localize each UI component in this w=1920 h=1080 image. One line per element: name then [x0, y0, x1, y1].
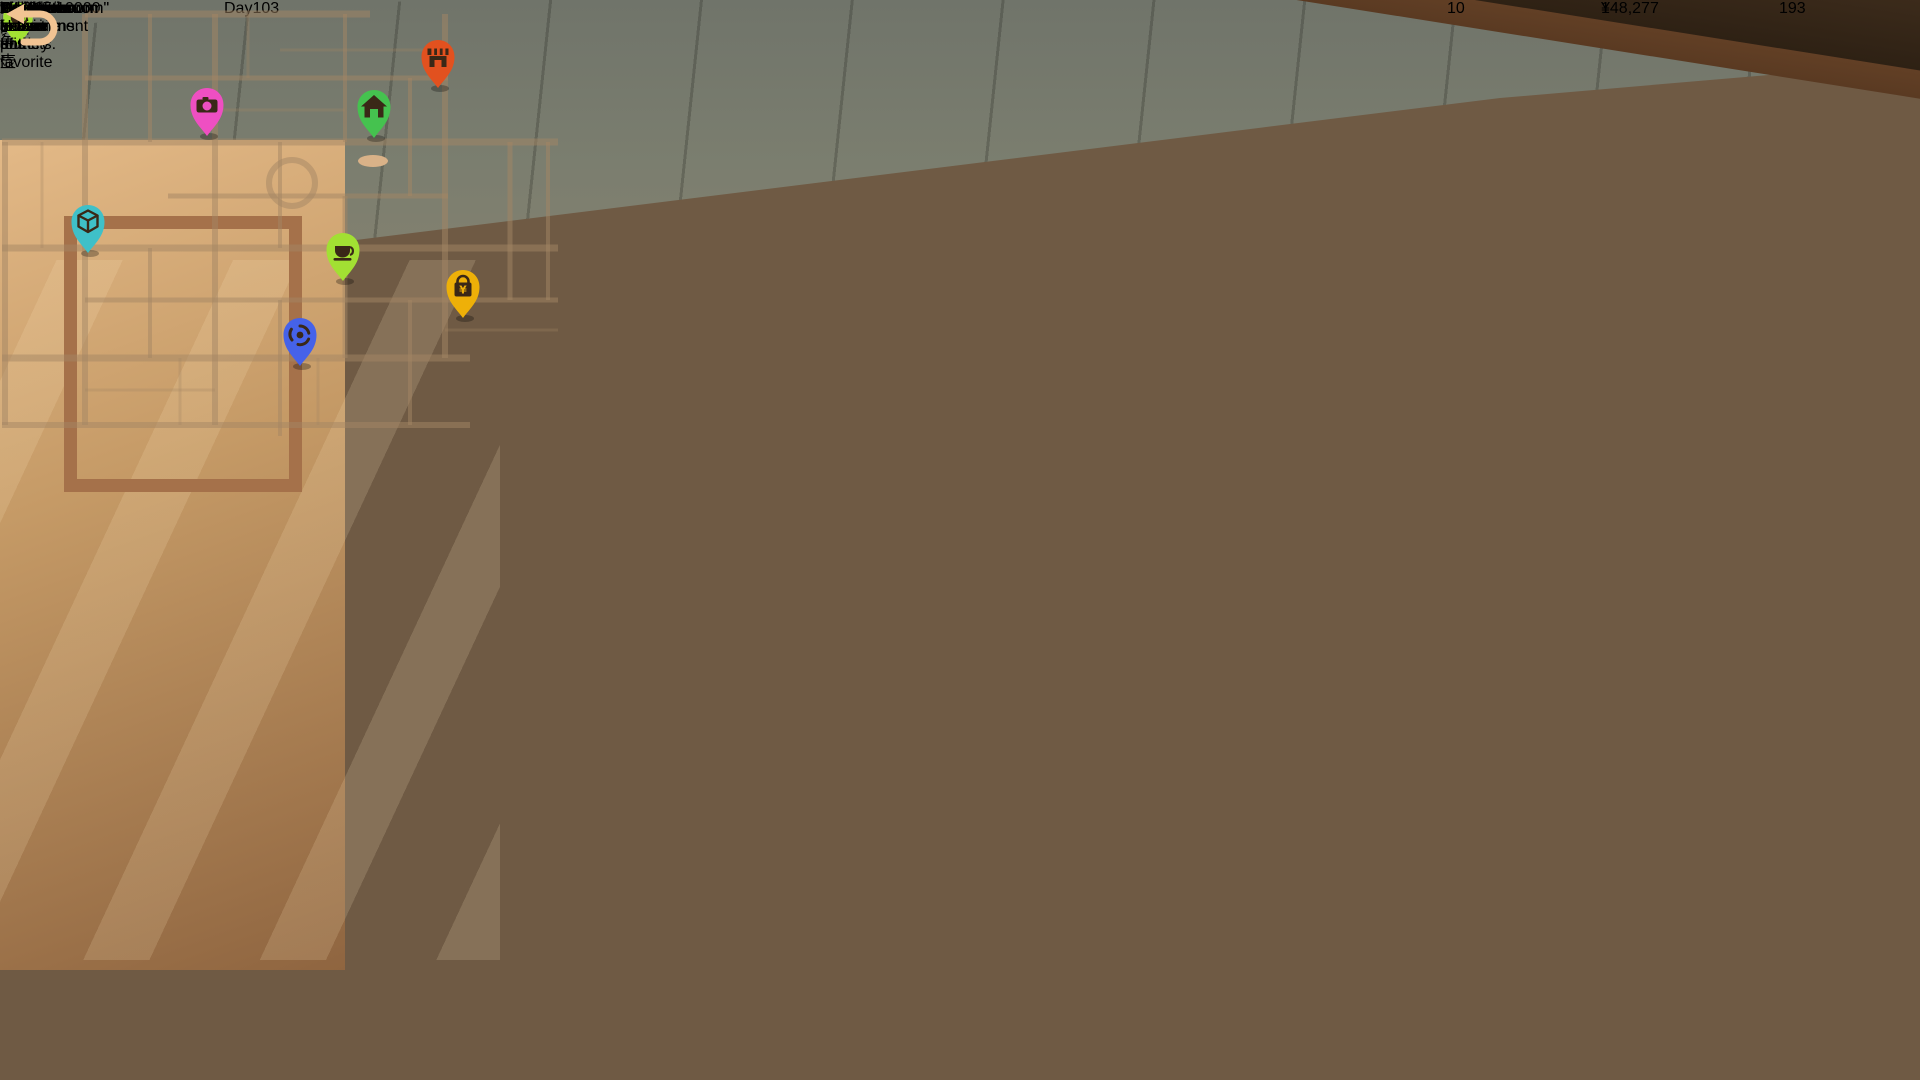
money-count: 148,277 [1601, 0, 1659, 18]
map-pin-tea-house[interactable] [327, 233, 360, 285]
map-pin-myshowroom[interactable] [358, 90, 391, 142]
game-screen: 哥窑壶 9 1467/10000 Day103 Showroom [0, 0, 1920, 1080]
return-arrow-icon [0, 0, 62, 56]
town-map[interactable]: ¥ [0, 0, 560, 436]
map-pin-pottery-shop[interactable] [422, 40, 455, 92]
inspiration-count: 10 [1447, 0, 1465, 18]
rope-barrier [1604, 610, 1659, 618]
map-pin-photo-studio[interactable] [191, 88, 224, 140]
player-marker-icon [358, 155, 388, 167]
map-pin-store[interactable] [447, 270, 480, 322]
materials-count: 193 [1779, 0, 1806, 18]
rope-barrier [1770, 714, 1920, 731]
map-roundabout [269, 160, 315, 206]
stanchion-ball [1742, 674, 1774, 706]
map-pin-time-machine[interactable] [284, 318, 317, 370]
